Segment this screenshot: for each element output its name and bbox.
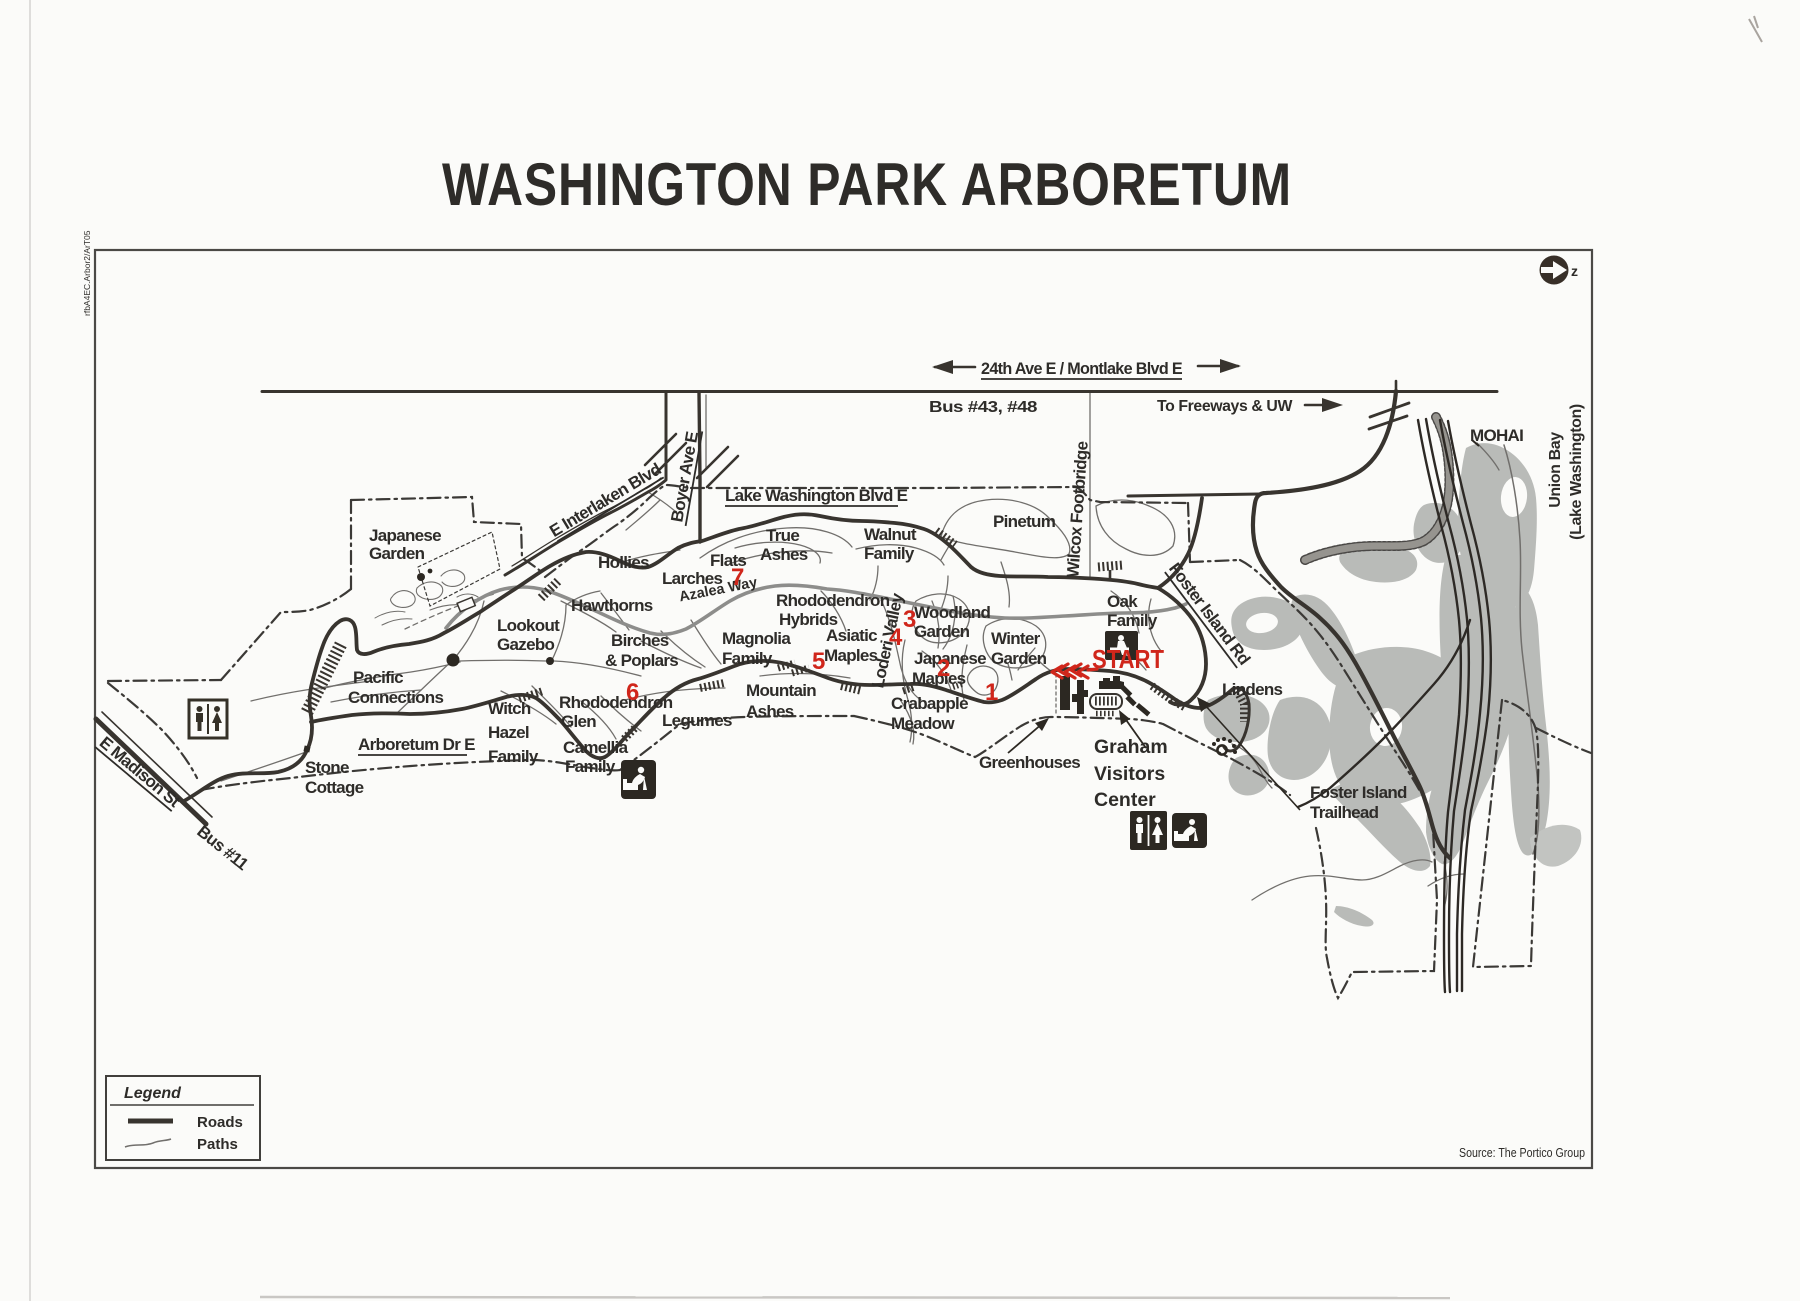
svg-text:Rhododendron: Rhododendron (776, 591, 890, 610)
svg-text:START: START (1092, 644, 1164, 674)
svg-text:Magnolia: Magnolia (722, 629, 791, 648)
svg-text:3: 3 (903, 606, 916, 633)
svg-text:Greenhouses: Greenhouses (979, 753, 1080, 772)
svg-text:Bus #43, #48: Bus #43, #48 (929, 399, 1038, 416)
svg-text:2: 2 (937, 655, 950, 682)
svg-text:Legumes: Legumes (662, 711, 732, 730)
svg-text:Legend: Legend (124, 1085, 182, 1102)
svg-text:WASHINGTON PARK ARBORETUM: WASHINGTON PARK ARBORETUM (442, 151, 1292, 218)
svg-text:rfbA4EC.Arbor2/ArT05: rfbA4EC.Arbor2/ArT05 (82, 230, 92, 316)
svg-text:Walnut: Walnut (864, 525, 917, 544)
svg-text:Hollies: Hollies (598, 553, 649, 572)
svg-text:Lookout: Lookout (497, 616, 560, 635)
svg-text:Larches: Larches (662, 569, 723, 588)
svg-text:24th Ave E / Montlake Blvd E: 24th Ave E / Montlake Blvd E (981, 359, 1182, 378)
svg-text:Asiatic: Asiatic (826, 626, 877, 645)
svg-text:Woodland: Woodland (914, 603, 991, 622)
svg-text:Pacific: Pacific (353, 668, 403, 687)
svg-text:Crabapple: Crabapple (891, 694, 968, 713)
svg-text:Family: Family (565, 757, 616, 776)
svg-text:Glen: Glen (561, 712, 596, 731)
svg-text:Trailhead: Trailhead (1310, 803, 1379, 822)
svg-text:To Freeways & UW: To Freeways & UW (1157, 398, 1293, 415)
svg-text:Family: Family (488, 747, 539, 766)
svg-text:Foster Island: Foster Island (1310, 783, 1407, 802)
svg-text:Garden: Garden (914, 622, 970, 641)
svg-text:z: z (1571, 263, 1578, 279)
svg-text:Visitors: Visitors (1094, 763, 1165, 785)
svg-text:Gazebo: Gazebo (497, 635, 555, 654)
svg-text:Japanese: Japanese (369, 526, 441, 545)
svg-text:(Lake Washington): (Lake Washington) (1568, 404, 1585, 540)
svg-text:MOHAI: MOHAI (1470, 426, 1523, 445)
svg-text:Rhododendron: Rhododendron (559, 693, 673, 712)
svg-text:Connections: Connections (348, 688, 443, 707)
svg-text:True: True (766, 526, 799, 545)
svg-text:Garden: Garden (369, 544, 425, 563)
svg-text:Lindens: Lindens (1222, 680, 1283, 699)
svg-text:4: 4 (889, 624, 903, 651)
svg-text:Pinetum: Pinetum (993, 512, 1056, 531)
svg-text:Roads: Roads (197, 1114, 243, 1131)
svg-text:Arboretum Dr E: Arboretum Dr E (358, 735, 475, 754)
svg-text:Lake Washington Blvd E: Lake Washington Blvd E (725, 486, 908, 505)
svg-text:Witch: Witch (488, 699, 531, 718)
svg-text:Family: Family (722, 649, 773, 668)
svg-text:Mountain: Mountain (746, 681, 816, 700)
svg-text:6: 6 (626, 679, 639, 706)
svg-text:Stone: Stone (305, 758, 349, 777)
svg-text:Paths: Paths (197, 1136, 238, 1153)
svg-text:Graham: Graham (1094, 736, 1168, 758)
svg-text:Source: The Portico Group: Source: The Portico Group (1459, 1146, 1585, 1160)
svg-text:Ashes: Ashes (760, 545, 808, 564)
svg-text:7: 7 (731, 564, 744, 591)
svg-text:Oak: Oak (1107, 592, 1138, 611)
svg-text:Center: Center (1094, 789, 1156, 811)
svg-text:Ashes: Ashes (746, 702, 794, 721)
svg-text:Family: Family (864, 544, 915, 563)
svg-text:Camellia: Camellia (563, 738, 629, 757)
svg-text:Family: Family (1107, 611, 1158, 630)
svg-text:Cottage: Cottage (305, 778, 364, 797)
svg-text:Meadow: Meadow (891, 714, 955, 733)
svg-text:Hawthorns: Hawthorns (571, 596, 653, 615)
svg-text:Garden: Garden (991, 649, 1047, 668)
svg-text:Union Bay: Union Bay (1547, 432, 1564, 508)
svg-text:Maples: Maples (824, 646, 878, 665)
svg-text:& Poplars: & Poplars (605, 651, 678, 670)
svg-text:1: 1 (985, 679, 998, 706)
svg-text:Hazel: Hazel (488, 723, 529, 742)
svg-text:Birches: Birches (611, 631, 669, 650)
svg-text:5: 5 (812, 648, 825, 675)
svg-text:Winter: Winter (991, 629, 1041, 648)
